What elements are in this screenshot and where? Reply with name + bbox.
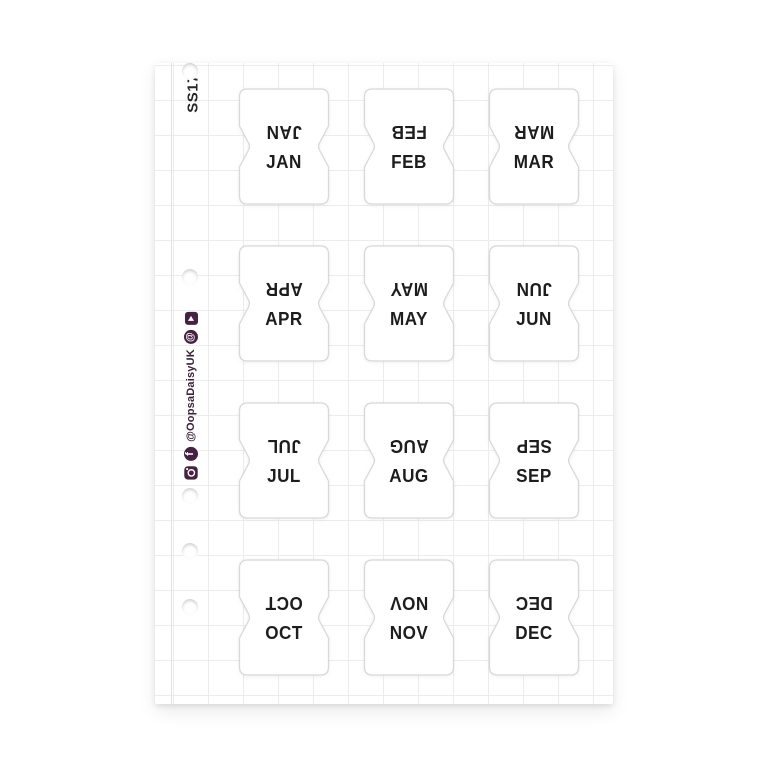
hole-punch	[182, 599, 198, 615]
tab-sticker-shape	[363, 88, 455, 205]
month-label: NOV	[365, 624, 452, 642]
month-tab-apr: APR APR	[238, 245, 330, 362]
month-label: MAR	[490, 153, 577, 171]
facebook-icon: f	[184, 447, 198, 461]
hole-punch	[182, 63, 198, 79]
month-tab-may: MAY MAY	[363, 245, 455, 362]
month-label-inverted: MAY	[365, 280, 452, 298]
month-tab-nov: NOV NOV	[363, 559, 455, 676]
hole-punch	[182, 543, 198, 559]
month-label: JUL	[240, 467, 327, 485]
month-tab-dec: DEC DEC	[488, 559, 580, 676]
month-label-inverted: JUL	[240, 437, 327, 455]
hole-punch	[182, 488, 198, 504]
at-icon: @	[184, 330, 198, 344]
social-strip: f @OopsaDaisyUK @	[184, 312, 198, 480]
month-tab-oct: OCT OCT	[238, 559, 330, 676]
month-label-inverted: MAR	[490, 123, 577, 141]
tab-sticker-shape	[238, 559, 330, 676]
social-handle: @OopsaDaisyUK	[185, 349, 197, 442]
month-tab-mar: MAR MAR	[488, 88, 580, 205]
month-tab-sep: SEP SEP	[488, 402, 580, 519]
margin-line	[171, 63, 172, 704]
tab-sticker-shape	[488, 88, 580, 205]
month-label: MAY	[365, 310, 452, 328]
tab-sticker-shape	[238, 402, 330, 519]
month-tab-jun: JUN JUN	[488, 245, 580, 362]
tab-sticker-shape	[488, 559, 580, 676]
month-tab-jan: JAN JAN	[238, 88, 330, 205]
month-label-inverted: SEP	[490, 437, 577, 455]
hole-punch	[182, 269, 198, 285]
month-tabs: JAN JAN FEB FEB MAR MAR APR APR MAY MAY	[238, 88, 580, 676]
month-label: AUG	[365, 467, 452, 485]
month-label-inverted: JAN	[240, 123, 327, 141]
tab-sticker-shape	[363, 402, 455, 519]
month-tab-jul: JUL JUL	[238, 402, 330, 519]
month-label: DEC	[490, 624, 577, 642]
month-tab-feb: FEB FEB	[363, 88, 455, 205]
month-label: APR	[240, 310, 327, 328]
sticker-sheet: SS173 f @OopsaDaisyUK @ JAN JAN	[155, 63, 613, 704]
tab-sticker-shape	[363, 559, 455, 676]
month-label-inverted: FEB	[365, 123, 452, 141]
month-label: OCT	[240, 624, 327, 642]
tab-sticker-shape	[363, 245, 455, 362]
month-label: JUN	[490, 310, 577, 328]
month-label-inverted: JUN	[490, 280, 577, 298]
product-photo: SS173 f @OopsaDaisyUK @ JAN JAN	[0, 0, 768, 768]
month-label-inverted: APR	[240, 280, 327, 298]
month-label: JAN	[240, 153, 327, 171]
tab-sticker-shape	[488, 245, 580, 362]
tab-sticker-shape	[238, 88, 330, 205]
month-label: FEB	[365, 153, 452, 171]
month-label-inverted: AUG	[365, 437, 452, 455]
month-label-inverted: DEC	[490, 594, 577, 612]
play-icon	[185, 312, 198, 325]
month-label-inverted: OCT	[240, 594, 327, 612]
instagram-icon	[184, 466, 198, 480]
month-label-inverted: NOV	[365, 594, 452, 612]
tab-sticker-shape	[488, 402, 580, 519]
month-label: SEP	[490, 467, 577, 485]
month-tab-aug: AUG AUG	[363, 402, 455, 519]
tab-sticker-shape	[238, 245, 330, 362]
